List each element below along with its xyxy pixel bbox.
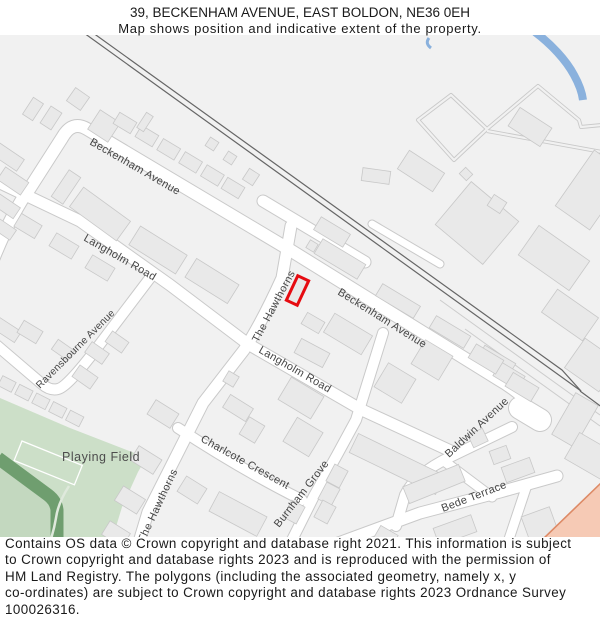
svg-text:Playing Field: Playing Field: [62, 450, 140, 464]
